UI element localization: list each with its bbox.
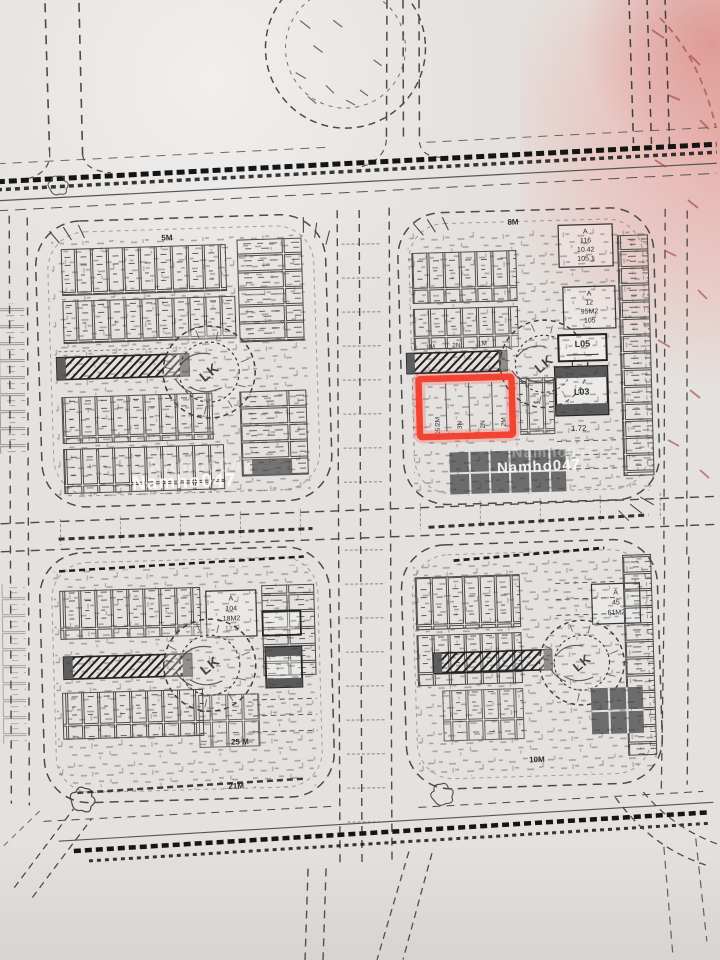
photo-vignette	[0, 0, 720, 960]
cadastral-map-photo: LK	[0, 0, 720, 960]
